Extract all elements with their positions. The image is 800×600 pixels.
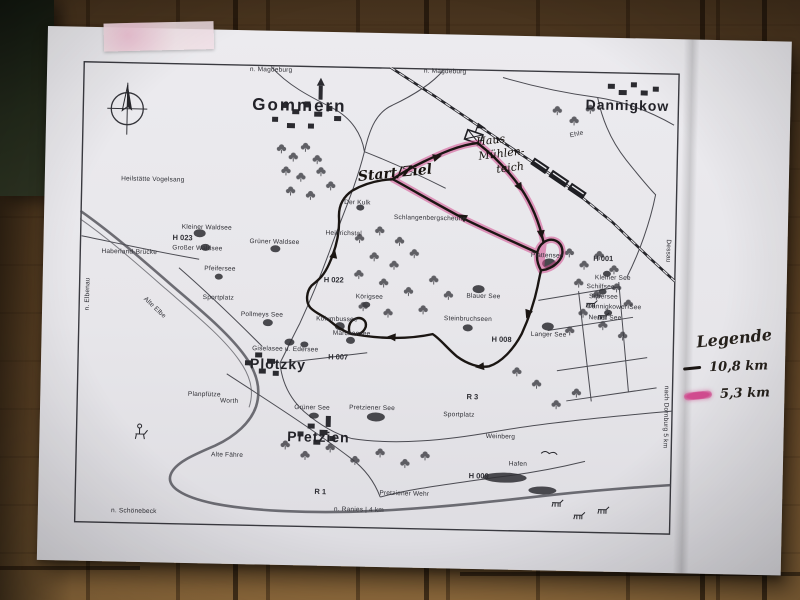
map-label: Gommern [252,96,347,115]
map-label: Dessau [664,239,671,262]
adhesive-tape [104,21,215,51]
map-label: nach Dornburg 5 km [661,386,669,449]
map-label: H 023 [173,234,193,242]
map-labels-layer: n. Magdeburgn. MagdeburgGommernDannigkow… [74,61,681,535]
map-label: Hafen [509,461,527,468]
map-label: n. Schönebeck [111,508,157,515]
map-label: R 1 [314,488,326,496]
map-paper: n. Magdeburgn. MagdeburgGommernDannigkow… [37,26,792,575]
map-label: Kolumbussee [316,316,358,323]
map-label: H 008 [491,336,511,344]
map-label: Start/Ziel [357,163,432,184]
legend-distance-short: 5,3 km [720,385,770,402]
map-label: Kleiner Waldsee [182,225,232,233]
map-label: Silbersee [589,294,618,301]
map-label: n. Magdeburg [250,67,293,74]
map-label: Der Kulk [344,200,371,207]
map-label: Grüner See [294,405,330,412]
map-label: Heilstätte Vogelsang [121,176,184,184]
wood-seam [0,566,140,570]
map-label: Pretzien [287,429,350,444]
route-line-swatch [683,366,701,370]
map-label: Giselasee u. Edersee [252,346,318,354]
map-label: Kleiner See [595,275,631,282]
map-label: Planpfütze [188,392,221,399]
highlight-marker-swatch [684,390,713,401]
map-label: teich [496,161,525,175]
map-label: n. Ranies | 4 km [334,507,384,515]
map-label: n. Magdeburg [424,69,467,76]
map-label: Sportplatz [443,412,474,419]
legend-row-long-route: 10,8 km [683,358,783,376]
map-label: Grüner Waldsee [250,239,300,247]
map-label: Körigsee [356,294,383,301]
map-label: Schilfsee [586,284,614,291]
legend-row-short-route: 5,3 km [684,385,784,403]
map-label: H 007 [328,353,348,361]
map-label: Pretziener See [349,405,395,412]
legend: Legende 10,8 km 5,3 km [682,327,784,403]
photo-scene: n. Magdeburgn. MagdeburgGommernDannigkow… [0,0,800,600]
map-label: Ehle [569,130,584,139]
map-label: H 022 [324,276,344,284]
legend-distance-long: 10,8 km [709,358,768,375]
map-label: Steinbruchseen [444,316,492,324]
map-label: n. Elbenau [85,277,92,310]
map-label: Haus [476,133,506,147]
map-label: Großer Waldsee [172,245,222,253]
map-label: Weinberg [486,434,515,441]
map-label: Pfeifersee [204,266,235,273]
map-label: Schlangenbergscheune [394,215,466,223]
map-label: Worth [220,398,238,405]
map-label: Haberland-Brücke [101,249,157,257]
map-label: Alte Elbe [142,296,167,320]
map-label: Neuer See [588,315,621,322]
map-label: Alte Fähre [211,452,243,459]
legend-title: Legende [695,324,782,352]
map-frame: n. Magdeburgn. MagdeburgGommernDannigkow… [74,61,681,535]
map-label: Märchensee [333,331,371,338]
map-label: Plötzky [250,356,306,371]
map-label: Dannigkow [585,97,669,113]
map-label: Plattensee [531,253,564,260]
map-label: H 001 [593,255,613,263]
map-label: Langer See [531,332,567,339]
map-label: R 3 [466,393,478,401]
map-label: Sportplatz [203,295,234,302]
map-label: Heinrichstal [325,231,361,238]
map-label: Blauer See [466,294,500,301]
map-label: Pretziener Wehr [379,491,429,499]
map-label: Dannigkower See [587,304,641,312]
map-label: H 009 [469,472,489,480]
map-label: Pollmeys See [241,312,283,319]
